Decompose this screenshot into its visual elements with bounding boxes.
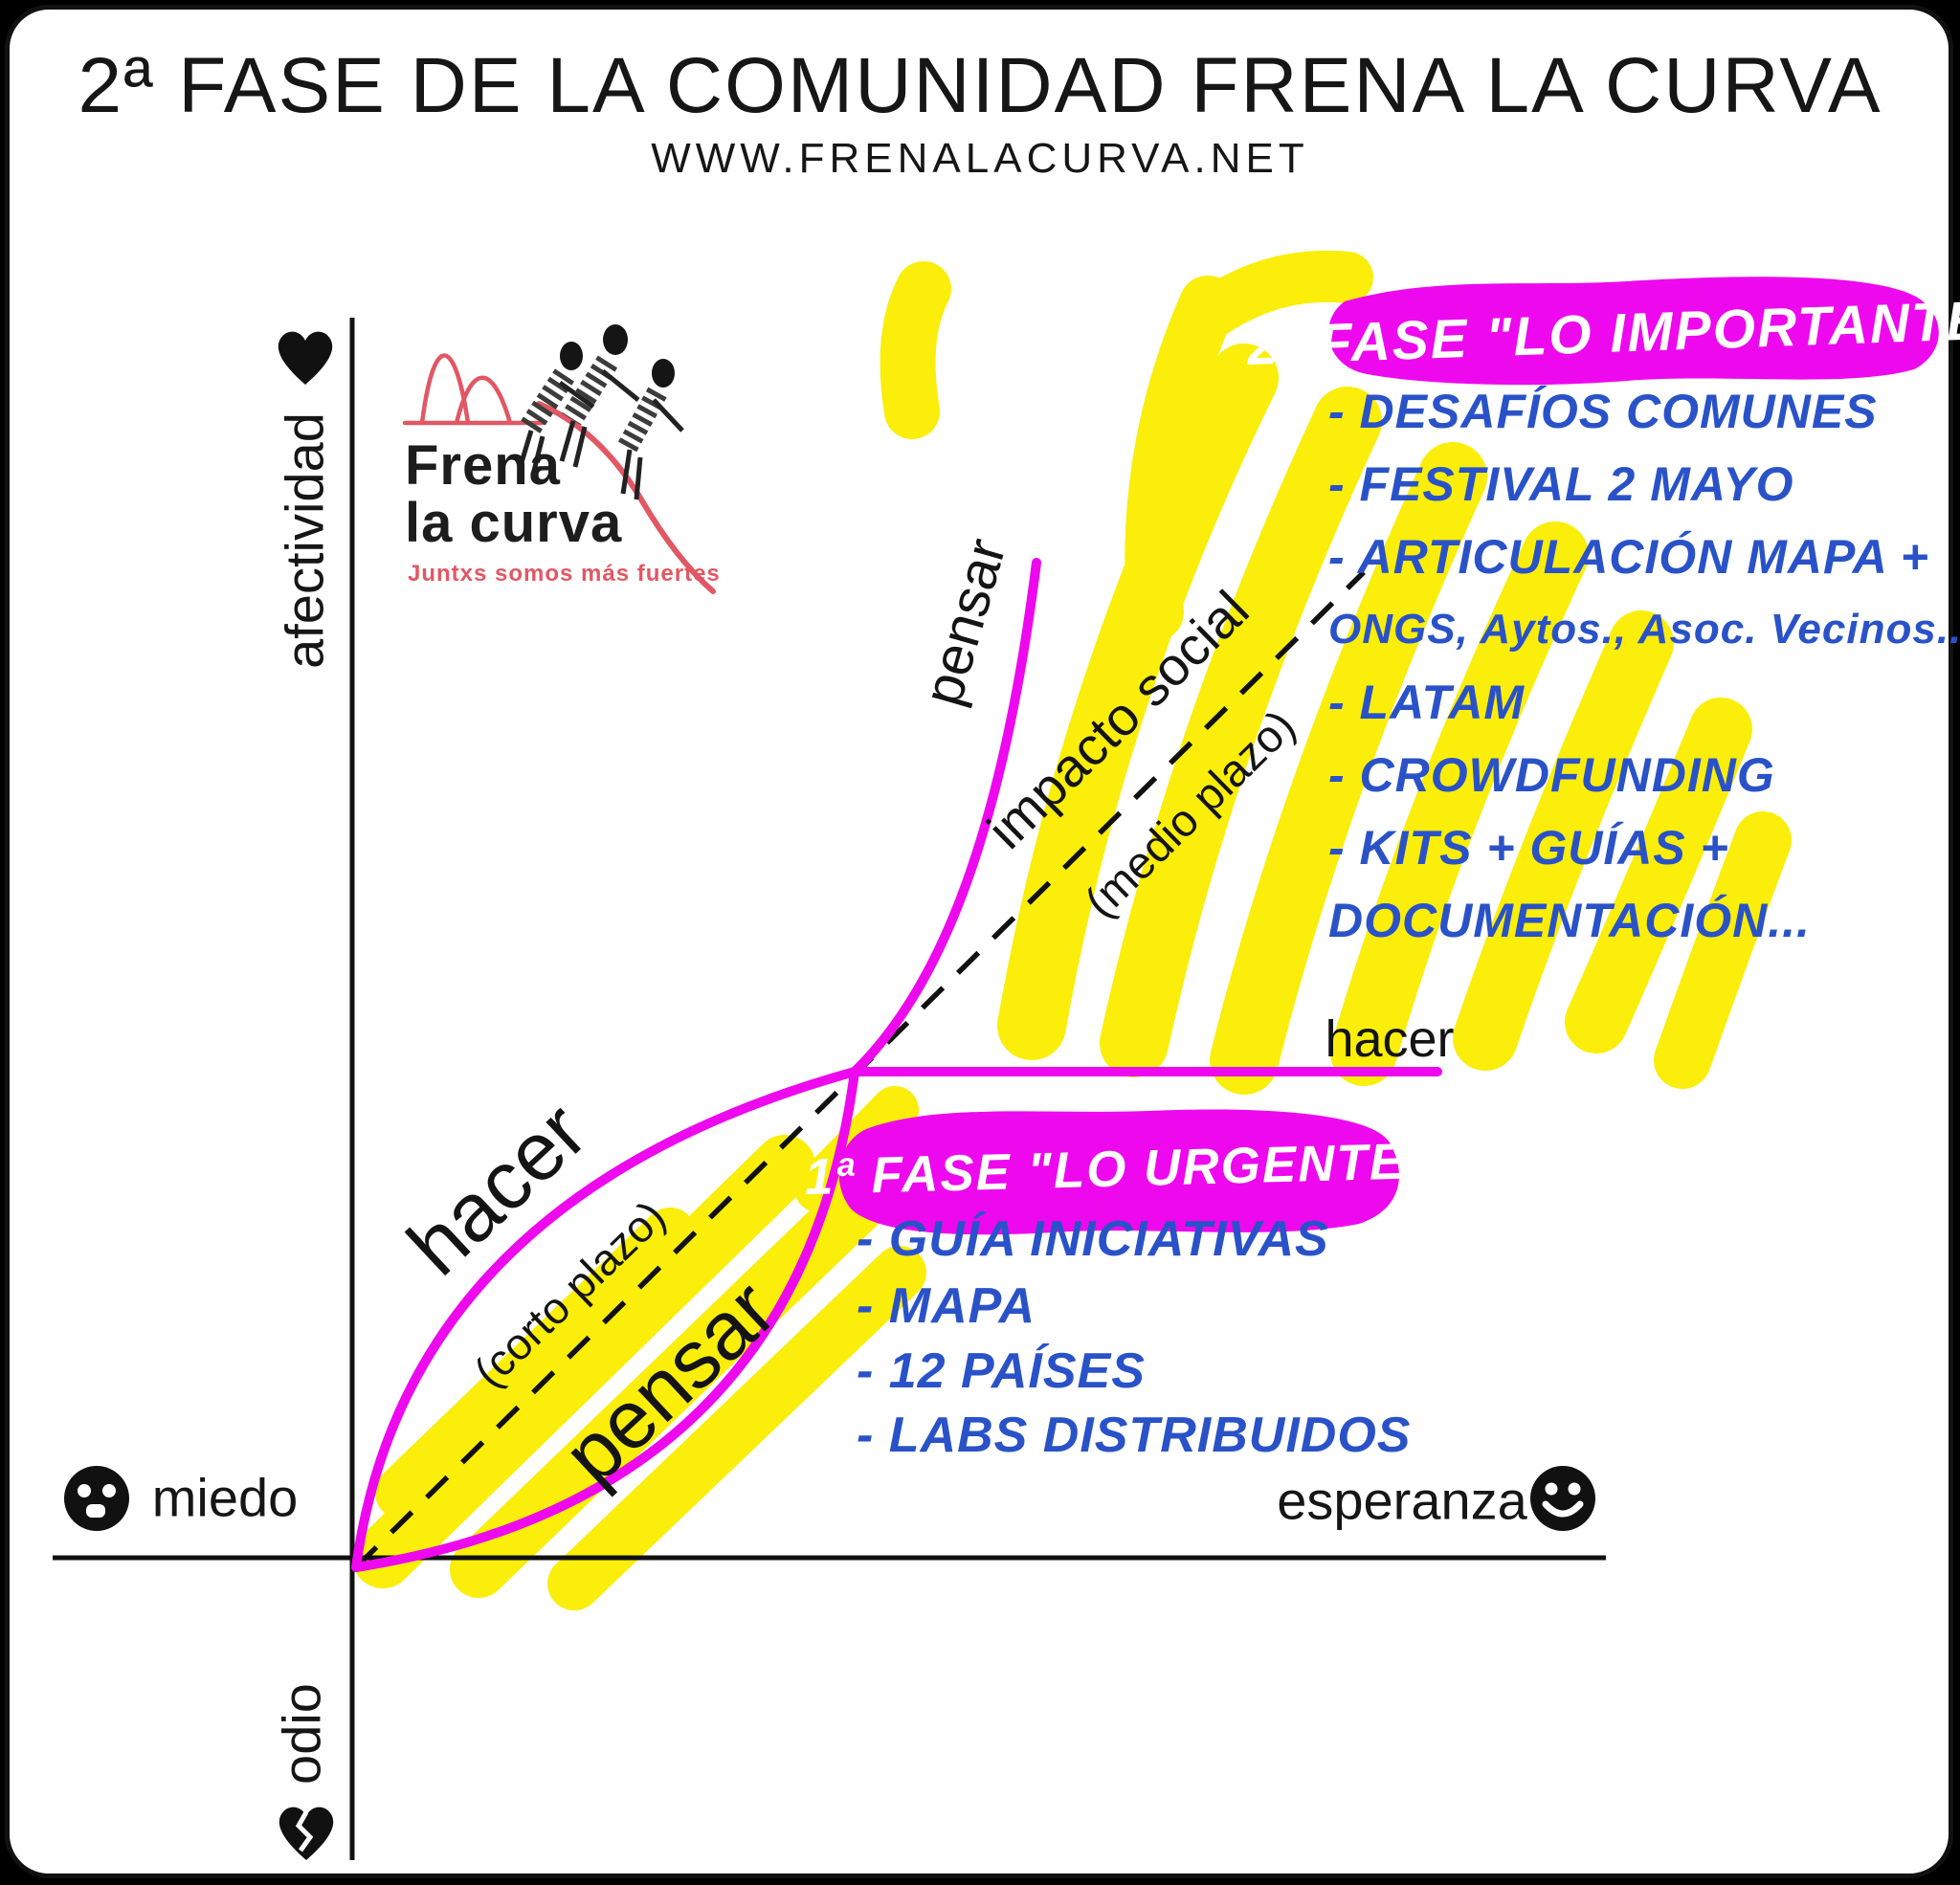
phase2-item: - LATAM xyxy=(1328,675,1525,730)
page-subtitle: WWW.FRENALACURVA.NET xyxy=(651,135,1309,183)
phase1-item: - GUÍA INICIATIVAS xyxy=(857,1210,1329,1268)
fearful-face-icon xyxy=(64,1466,129,1531)
heart-icon xyxy=(278,332,332,385)
phase2-item: - DESAFÍOS COMUNES xyxy=(1328,384,1878,439)
phase2-item: - FESTIVAL 2 MAYO xyxy=(1328,456,1793,512)
phase1-item: - MAPA xyxy=(857,1277,1036,1335)
logo-wordmark-line2: la curva xyxy=(405,496,622,551)
curve-label-hacer-upper: hacer xyxy=(1325,1009,1454,1069)
phase2-item: - CROWDFUNDING xyxy=(1328,747,1775,803)
phase2-item: - ARTICULACIÓN MAPA + xyxy=(1328,529,1929,585)
y-axis-label-afectividad: afectividad xyxy=(274,412,336,669)
phase2-item: ONGS, Aytos., Asoc. Vecinos... xyxy=(1328,606,1960,654)
logo-wordmark-line1: Frena xyxy=(405,438,561,494)
x-axis-label-miedo: miedo xyxy=(152,1467,299,1529)
phase2-item: - KITS + GUÍAS + xyxy=(1328,820,1729,876)
broken-heart-icon xyxy=(279,1807,333,1860)
phase1-item: - 12 PAÍSES xyxy=(857,1342,1146,1400)
diagram-canvas: 2ª FASE DE LA COMUNIDAD FRENA LA CURVA W… xyxy=(0,0,1960,1885)
x-axis-label-esperanza: esperanza xyxy=(1277,1470,1527,1532)
smiley-face-icon xyxy=(1530,1466,1595,1531)
phase2-item: DOCUMENTACIÓN... xyxy=(1328,893,1811,948)
logo-tagline: Juntxs somos más fuertes xyxy=(408,561,721,588)
y-axis-label-odio: odio xyxy=(271,1683,333,1785)
phase1-item: - LABS DISTRIBUIDOS xyxy=(857,1407,1411,1464)
page-title: 2ª FASE DE LA COMUNIDAD FRENA LA CURVA xyxy=(78,41,1882,131)
